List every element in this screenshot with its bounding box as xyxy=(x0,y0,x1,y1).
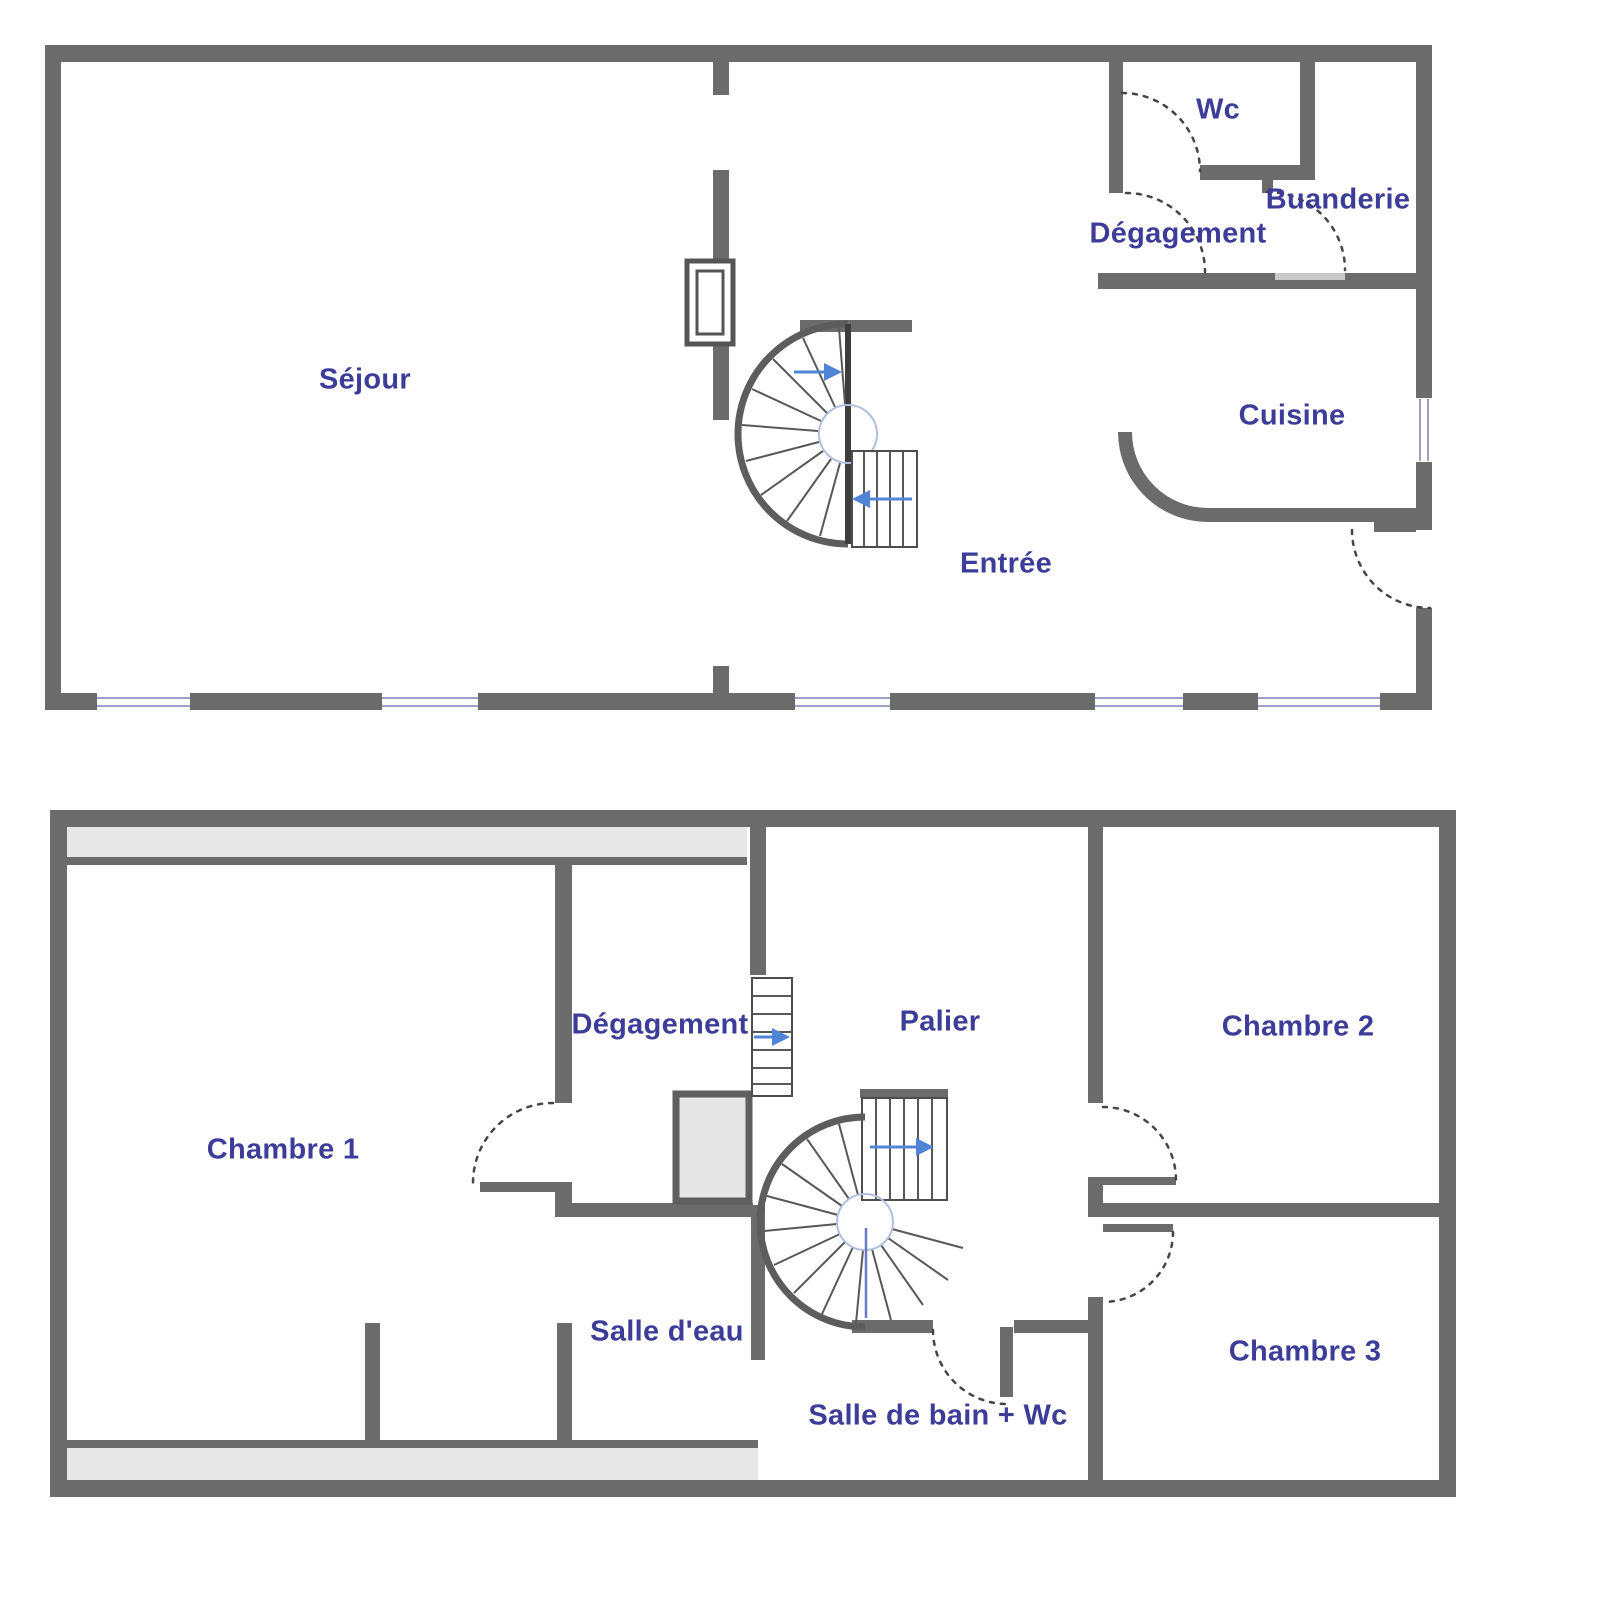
room-label-buanderie: Buanderie xyxy=(1266,184,1411,217)
closet xyxy=(676,1094,749,1201)
entry-door-swing-arc xyxy=(1352,530,1430,608)
buanderie-threshold xyxy=(1275,273,1345,280)
low-ceiling-bands xyxy=(67,827,758,1480)
room-label-salle-de-bain-wc: Salle de bain + Wc xyxy=(808,1400,1067,1433)
first-door-swings xyxy=(473,1103,1176,1404)
room-label-entree: Entrée xyxy=(960,548,1052,581)
room-label-chambre1: Chambre 1 xyxy=(207,1134,360,1167)
room-label-cuisine: Cuisine xyxy=(1239,400,1346,433)
chambre1-door-swing-arc xyxy=(473,1103,553,1183)
wc-door-swing-arc xyxy=(1122,93,1200,171)
room-label-degagement-etage: Dégagement xyxy=(571,1009,748,1042)
chambre2-door-swing-arc xyxy=(1103,1107,1176,1180)
ground-straight-stair xyxy=(852,451,917,547)
bathroom-door-swing-arc xyxy=(933,1330,1007,1404)
radiator xyxy=(687,261,733,344)
ground-windows xyxy=(97,399,1428,706)
room-label-chambre2: Chambre 2 xyxy=(1222,1011,1375,1044)
chambre3-door-swing-arc xyxy=(1103,1232,1173,1302)
ground-exterior-walls xyxy=(45,45,1432,710)
kitchen-curved-wall xyxy=(1118,432,1416,522)
room-label-chambre3: Chambre 3 xyxy=(1229,1336,1382,1369)
room-label-wc: Wc xyxy=(1196,94,1240,127)
room-label-degagement-rdc: Dégagement xyxy=(1089,218,1266,251)
room-label-palier: Palier xyxy=(900,1006,981,1039)
ground-interior-walls xyxy=(713,62,1416,693)
spiral-treads xyxy=(742,328,845,536)
room-label-sejour: Séjour xyxy=(319,364,411,397)
ground-floor-plan xyxy=(45,45,1432,710)
floor-plan-document: Séjour Wc Dégagement Buanderie Cuisine E… xyxy=(0,0,1600,1600)
room-label-salle-deau: Salle d'eau xyxy=(590,1316,744,1349)
